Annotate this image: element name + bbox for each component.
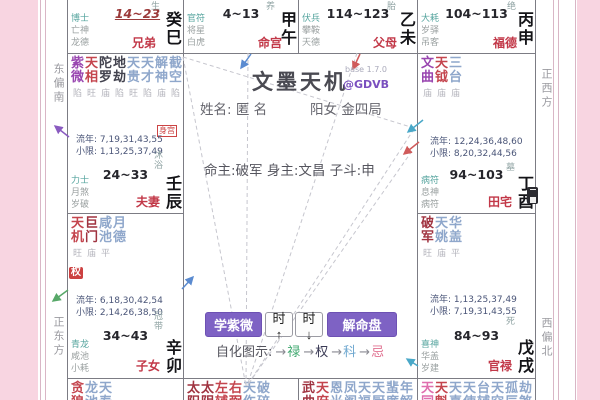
god-label: 龙德: [71, 37, 89, 49]
star-column: 天府: [316, 382, 329, 400]
legend-arrow-icon: →: [275, 345, 286, 360]
star-column: 天相旺: [85, 57, 98, 99]
palace-cell-hai[interactable]: 天同天魁天喜天使台辅天空孤辰劫煞: [418, 379, 535, 400]
profile-value: 阳女 金四局: [310, 98, 382, 118]
star-column: 恩光: [330, 382, 343, 400]
god-label: 亡神: [71, 25, 89, 37]
star-column: 天贵旺: [127, 57, 140, 99]
stem-branch: 癸巳: [164, 11, 181, 47]
stem-branch: 丙申: [516, 11, 533, 47]
palace-name: 官禄: [488, 357, 512, 374]
star-column: 陀罗庙: [99, 57, 112, 99]
yearly-limits: 流年: 1,13,25,37,49小限: 7,19,31,43,55: [430, 294, 517, 318]
yearly-limits: 流年: 12,24,36,48,60小限: 8,20,32,44,56: [430, 136, 523, 160]
god-label: 病符: [421, 199, 439, 211]
star-column: 劫煞: [519, 382, 532, 400]
star-column: 贪狼: [71, 382, 84, 400]
star-column: 破军旺: [421, 217, 434, 259]
star-column: 地劫陷: [113, 57, 126, 99]
palace-cell-si-xiongdi[interactable]: 博士亡神龙德 14~23 兄弟 癸巳 长生: [68, 0, 183, 53]
god-label: 岁破: [71, 199, 89, 211]
god-label: 青龙: [71, 339, 89, 351]
compass-label-east-south: 东偏南: [50, 63, 66, 105]
star-column: 龙池: [85, 382, 98, 400]
god-label: 病符: [421, 175, 439, 187]
compass-label-west-north: 西偏北: [538, 317, 554, 359]
star-list: 紫微陷天相旺陀罗庙地劫陷天贵旺天才陷解神庙截空陷天虚陷: [71, 57, 183, 99]
palace-name: 福德: [493, 34, 517, 51]
star-column: 凤阁: [344, 382, 357, 400]
star-column: 三台庙: [449, 57, 462, 99]
palace-cell-shen-fude[interactable]: 大耗岁驿吊客 104~113 福德 丙申 绝: [418, 0, 535, 53]
star-column: 紫微陷: [71, 57, 84, 99]
star-column: 蜚廉: [386, 382, 399, 400]
center-panel: 文墨天机 base 1.7.0 @GDVB 姓名: 匿 名 阳女 金四局 命主:…: [183, 53, 417, 378]
legend-arrow-icon: →: [303, 345, 314, 360]
star-column: 天空: [491, 382, 504, 400]
frame-line: [575, 0, 576, 400]
star-column: 天福: [358, 382, 371, 400]
star-column: 天魁: [435, 382, 448, 400]
star-list: 贪狼龙池天寿: [71, 382, 112, 400]
star-list: 天同天魁天喜天使台辅天空孤辰劫煞: [421, 382, 532, 400]
frame-line: [45, 0, 46, 400]
yearly-limits: 流年: 6,18,30,42,54小限: 2,14,26,38,50: [76, 295, 163, 319]
star-list: 文曲庙天钺庙三台庙: [421, 57, 462, 99]
star-column: 截空陷: [169, 57, 182, 99]
star-column: 左辅: [215, 382, 228, 400]
stem-branch: 乙未: [398, 11, 415, 47]
star-column: 解神庙: [155, 57, 168, 99]
star-column: 天使: [463, 382, 476, 400]
god-label: 岁驿: [421, 25, 439, 37]
palace-cell-wu-minggong[interactable]: 官符将星白虎 4~13 命宫 甲午 养: [184, 0, 298, 53]
legend-item: 权: [315, 345, 328, 360]
god-label: 岁建: [421, 363, 439, 375]
frame-line: [40, 0, 41, 400]
palace-cell-zi[interactable]: 武曲天府恩光凤阁天福天厨蜚廉年解: [299, 379, 417, 400]
palace-cell-you-tianzhai[interactable]: 文曲庙天钺庙三台庙 流年: 12,24,36,48,60小限: 8,20,32,…: [418, 54, 535, 213]
lifecycle-stage: 胎: [384, 1, 397, 11]
star-column: 天寿: [99, 382, 112, 400]
compass-label-east: 正东方: [50, 316, 66, 358]
god-label: 息神: [421, 187, 439, 199]
palace-cell-xu-guanlu[interactable]: 破军旺天姚庙华盖平 流年: 1,13,25,37,49小限: 7,19,31,4…: [418, 214, 535, 378]
god-label: 将星: [187, 25, 205, 37]
name-label: 姓名:: [200, 102, 232, 118]
star-column: 孤辰: [505, 382, 518, 400]
star-column: 天同: [421, 382, 434, 400]
legend-item: 禄: [287, 345, 300, 360]
lifecycle-stage: 养: [263, 1, 276, 11]
star-column: 天姚庙: [435, 217, 448, 259]
god-label: 力士: [71, 175, 89, 187]
god-label: 咸池: [71, 351, 89, 363]
star-column: 右弼: [229, 382, 242, 400]
legend-arrow-icon: →: [359, 345, 370, 360]
destiny-masters: 命主:破军 身主:文昌 子斗:申: [204, 159, 375, 179]
palace-name: 田宅: [488, 193, 512, 210]
side-drawer-handle[interactable]: [527, 187, 538, 204]
star-list: 武曲天府恩光凤阁天福天厨蜚廉年解: [302, 382, 413, 400]
star-column: 年解: [400, 382, 413, 400]
lifecycle-stage: 沐浴: [151, 150, 164, 170]
star-column: 华盖平: [449, 217, 462, 259]
app-version: base 1.7.0: [345, 65, 387, 74]
star-list: 天机旺巨门庙咸池平月德: [71, 217, 126, 259]
frame-line: [558, 0, 559, 400]
stem-branch: 戊戌: [516, 339, 533, 375]
star-column: 天伤: [243, 382, 256, 400]
lifecycle-stage: 长生: [148, 0, 161, 11]
ziwei-chart-app: 东偏南 正东方 正西方 西偏北 博士亡神龙德 14~23 兄弟 癸巳 长生 官符…: [0, 0, 600, 400]
god-label: 喜神: [421, 339, 439, 351]
yearly-limits: 流年: 7,19,31,43,55小限: 1,13,25,37,49: [76, 134, 163, 158]
star-column: 破碎: [257, 382, 270, 400]
palace-cell-mao-zinv[interactable]: 天机旺巨门庙咸池平月德 权 流年: 6,18,30,42,54小限: 2,14,…: [68, 214, 183, 378]
god-label: 天德: [302, 37, 320, 49]
palace-cell-wei-fumu[interactable]: 伏兵攀鞍天德 114~123 父母 乙未 胎: [299, 0, 417, 53]
right-pink-band: [577, 0, 600, 400]
god-label: 白虎: [187, 37, 205, 49]
stem-branch: 辛卯: [164, 339, 181, 375]
legend-arrow-icon: →: [331, 345, 342, 360]
star-column: 天才陷: [141, 57, 154, 99]
left-pink-band: [0, 0, 38, 400]
star-column: 天厨: [372, 382, 385, 400]
stem-branch: 壬辰: [164, 175, 181, 211]
star-column: 天机旺: [71, 217, 84, 259]
palace-name: 夫妻: [136, 193, 160, 210]
palace-cell-chen-fuqi[interactable]: 紫微陷天相旺陀罗庙地劫陷天贵旺天才陷解神庙截空陷天虚陷 身宫 流年: 7,19,…: [68, 54, 183, 213]
name-row: 姓名: 匿 名: [200, 98, 267, 118]
compass-label-west: 正西方: [538, 68, 554, 110]
god-label: 华盖: [421, 351, 439, 363]
legend-label: 自化图示:: [216, 341, 272, 360]
hour-down-button[interactable]: 时↓: [295, 312, 323, 337]
star-column: 文曲庙: [421, 57, 434, 99]
star-column: 太阳: [187, 382, 200, 400]
palace-cell-chou[interactable]: 太阳太阴左辅右弼天伤破碎: [184, 379, 298, 400]
star-list: 太阳太阴左辅右弼天伤破碎: [187, 382, 270, 400]
star-column: 咸池平: [99, 217, 112, 259]
interpret-chart-button[interactable]: 解命盘: [327, 312, 397, 337]
self-transformation-legend: 自化图示: →禄→权→科→忌: [216, 341, 384, 360]
star-column: 天喜: [449, 382, 462, 400]
god-label: 月煞: [71, 187, 89, 199]
learn-ziwei-button[interactable]: 学紫微: [205, 312, 262, 337]
name-value: 匿 名: [236, 102, 267, 118]
star-column: 太阴: [201, 382, 214, 400]
lifecycle-stage: 冠带: [151, 311, 164, 331]
palace-name: 子女: [136, 357, 160, 374]
star-list: 破军旺天姚庙华盖平: [421, 217, 462, 259]
transformation-badge-quan: 权: [69, 267, 83, 279]
god-label: 攀鞍: [302, 25, 320, 37]
lifecycle-stage: 绝: [504, 1, 517, 11]
hour-up-button[interactable]: 时↑: [265, 312, 293, 337]
legend-item: 忌: [371, 345, 384, 360]
god-label: 小耗: [71, 363, 89, 375]
stem-branch: 甲午: [279, 11, 296, 47]
lifecycle-stage: 死: [503, 316, 516, 326]
star-column: 巨门庙: [85, 217, 98, 259]
palace-name: 兄弟: [132, 34, 156, 51]
legend-item: 科: [343, 345, 356, 360]
menu-icon: [530, 189, 536, 197]
god-label: 吊客: [421, 37, 439, 49]
star-column: 月德: [113, 217, 126, 259]
palace-name: 父母: [373, 34, 397, 51]
lifecycle-stage: 墓: [503, 162, 516, 172]
author-handle: @GDVB: [343, 78, 389, 91]
star-column: 天钺庙: [435, 57, 448, 99]
palace-cell-yin[interactable]: 贪狼龙池天寿: [68, 379, 183, 400]
star-column: 台辅: [477, 382, 490, 400]
star-column: 武曲: [302, 382, 315, 400]
